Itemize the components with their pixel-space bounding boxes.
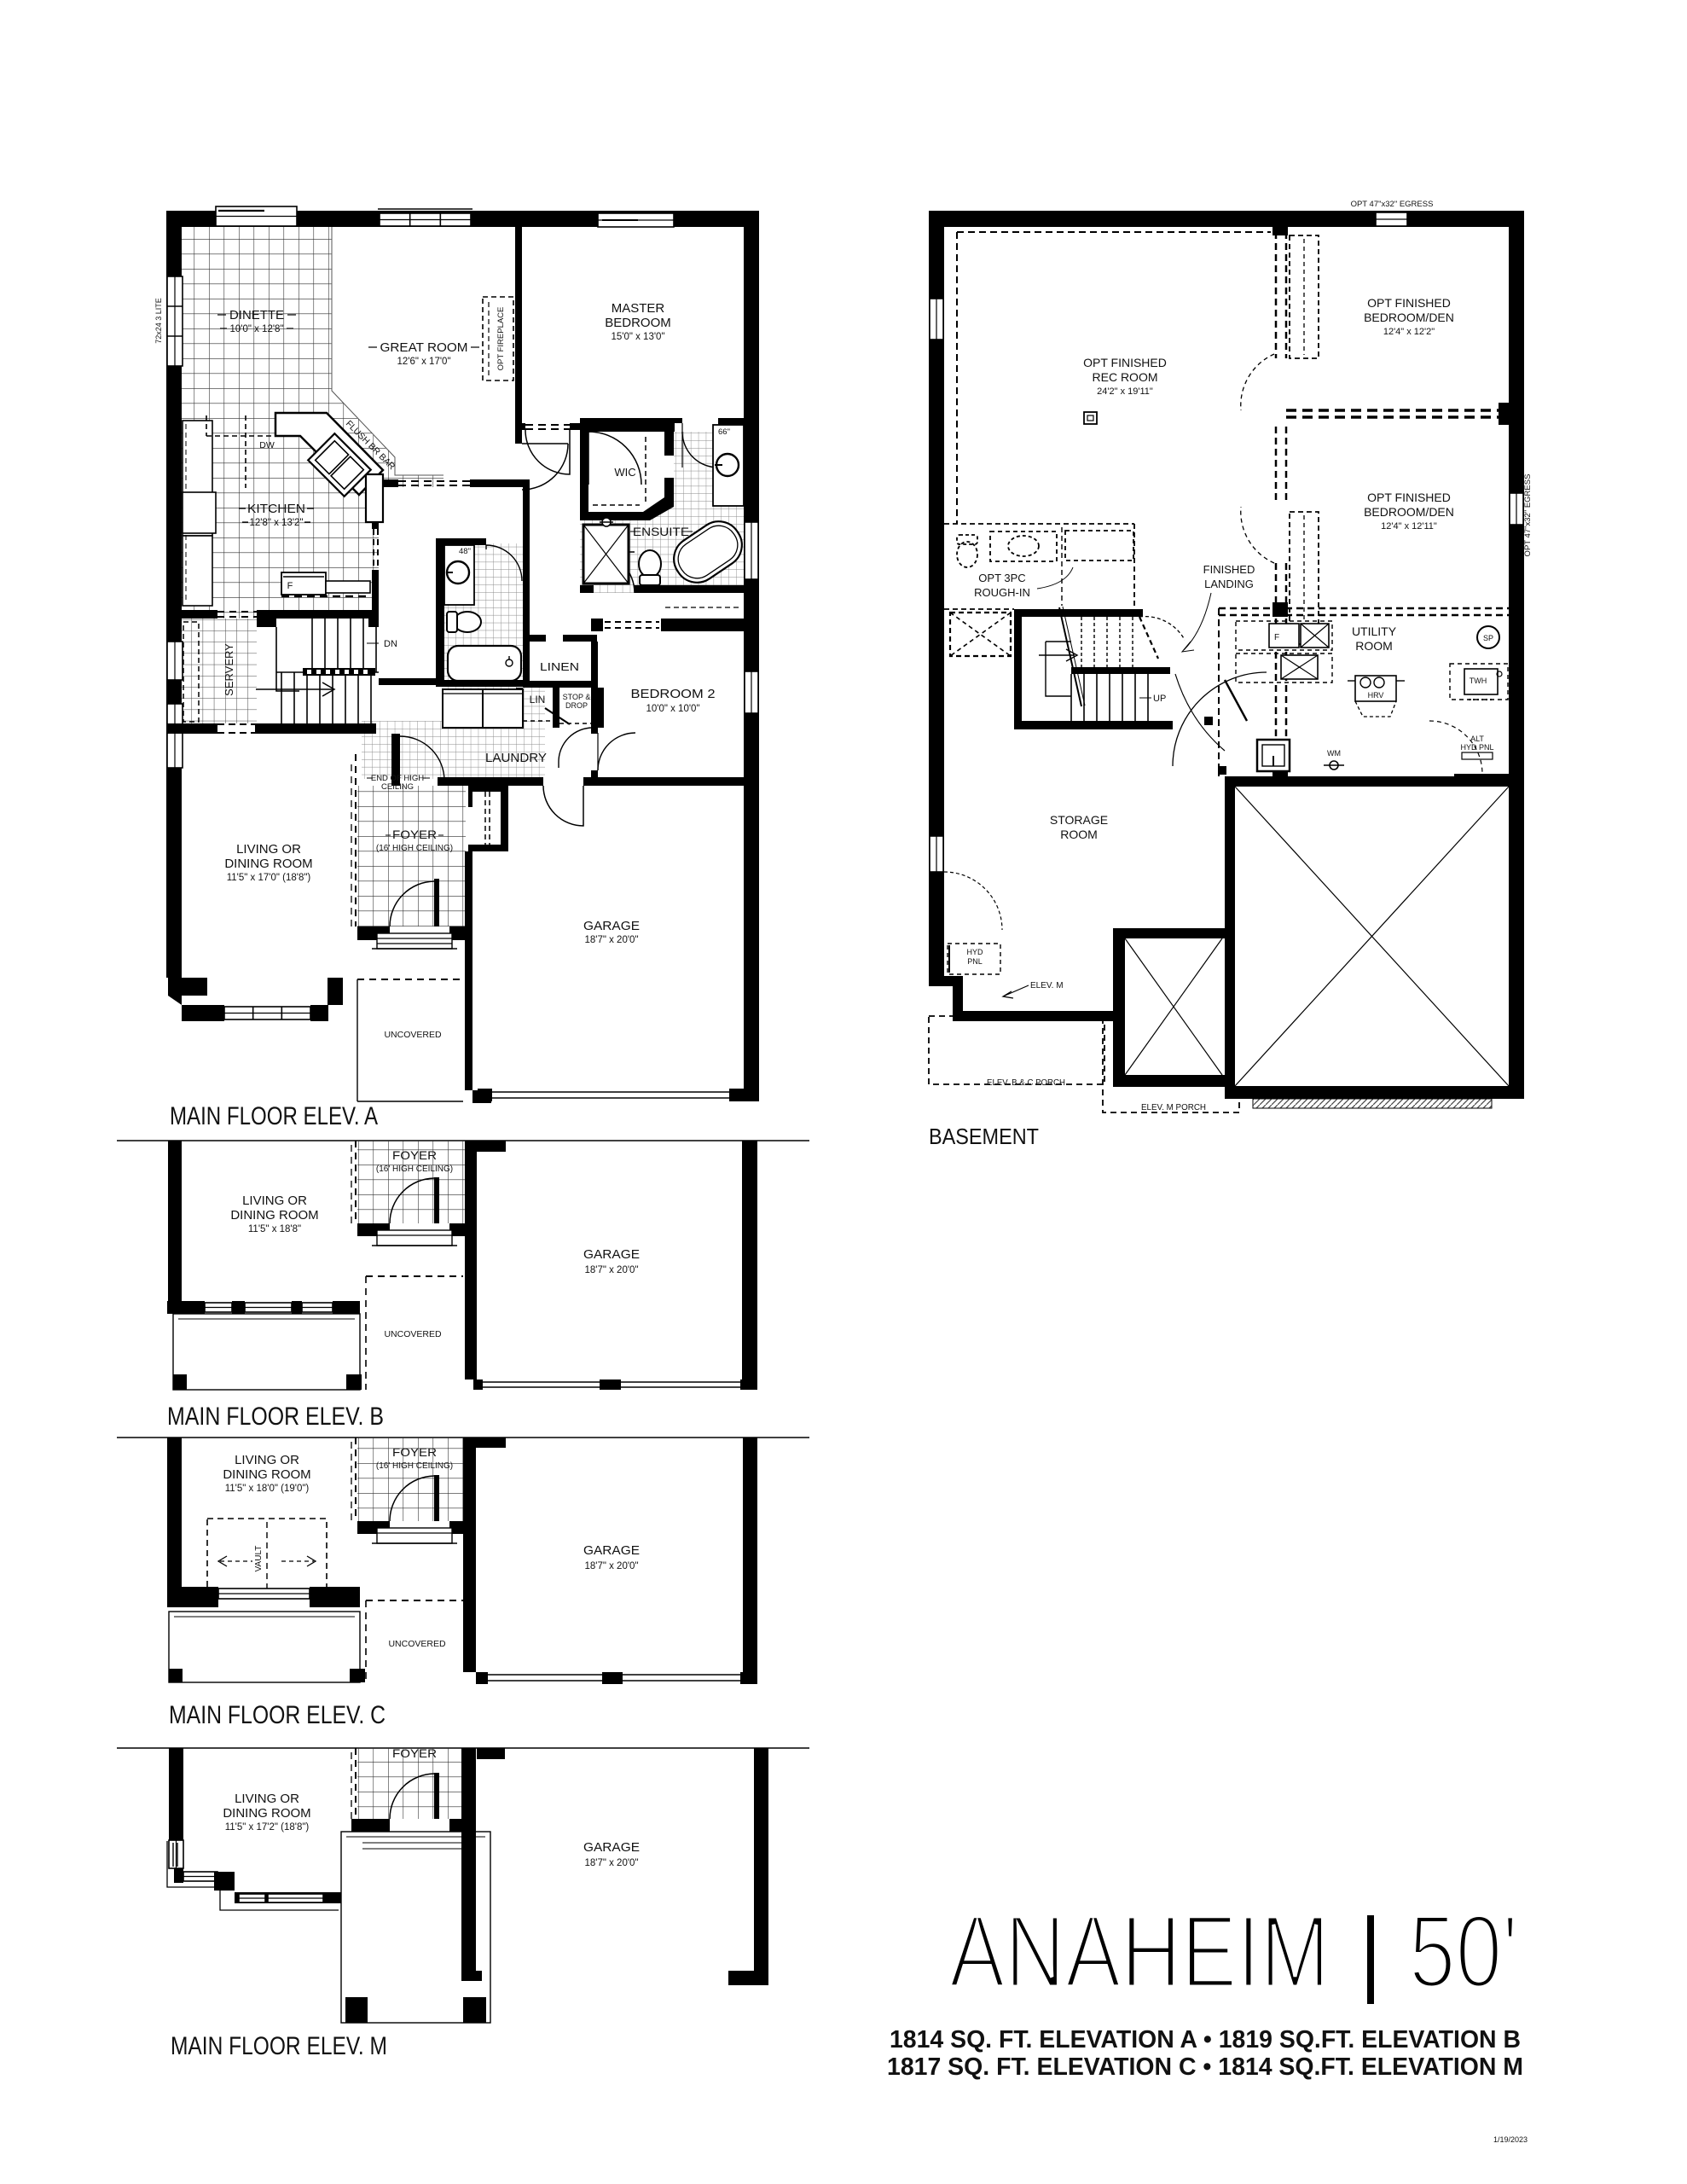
svg-text:GARAGE: GARAGE <box>583 1840 640 1855</box>
svg-text:11'5" x 17'2" (18'8"): 11'5" x 17'2" (18'8") <box>225 1822 310 1833</box>
svg-text:MAIN FLOOR ELEV. A: MAIN FLOOR ELEV. A <box>170 1102 378 1130</box>
svg-text:LIN: LIN <box>530 694 546 706</box>
svg-text:11'5" x 18'0" (19'0"): 11'5" x 18'0" (19'0") <box>225 1484 310 1494</box>
svg-text:KITCHEN: KITCHEN <box>247 502 305 516</box>
svg-text:1/19/2023: 1/19/2023 <box>1493 2135 1528 2144</box>
svg-text:GARAGE: GARAGE <box>583 919 640 933</box>
svg-text:12'6" x 17'0": 12'6" x 17'0" <box>397 357 450 367</box>
svg-text:UNCOVERED: UNCOVERED <box>384 1329 442 1339</box>
svg-text:(16' HIGH CEILING): (16' HIGH CEILING) <box>376 844 453 853</box>
svg-text:72x24 3 LITE: 72x24 3 LITE <box>154 298 163 344</box>
svg-text:OPT 3PC: OPT 3PC <box>978 572 1025 584</box>
svg-text:LIVING OR: LIVING OR <box>242 1194 307 1208</box>
svg-text:VAULT: VAULT <box>254 1546 264 1572</box>
svg-text:50': 50' <box>1409 1893 1518 2009</box>
svg-text:OPT FINISHED: OPT FINISHED <box>1367 296 1451 310</box>
svg-text:PNL: PNL <box>967 957 983 966</box>
svg-text:LAUNDRY: LAUNDRY <box>485 752 547 765</box>
svg-text:FOYER: FOYER <box>392 1746 437 1760</box>
svg-text:LINEN: LINEN <box>540 660 579 673</box>
svg-text:18'7" x 20'0": 18'7" x 20'0" <box>584 1561 638 1571</box>
svg-text:(16' HIGH CEILING): (16' HIGH CEILING) <box>376 1461 453 1471</box>
svg-text:66": 66" <box>718 427 730 437</box>
svg-text:11'5" x 17'0" (18'8"): 11'5" x 17'0" (18'8") <box>227 873 311 883</box>
svg-text:LIVING OR: LIVING OR <box>235 1792 299 1806</box>
svg-text:UP: UP <box>1153 694 1166 704</box>
svg-text:OPT 47"x32" EGRESS: OPT 47"x32" EGRESS <box>1351 200 1434 209</box>
svg-text:48": 48" <box>459 547 471 556</box>
svg-text:DINING ROOM: DINING ROOM <box>224 857 312 871</box>
svg-text:SP: SP <box>1483 634 1493 642</box>
svg-text:(16' HIGH CEILING): (16' HIGH CEILING) <box>376 1165 453 1174</box>
svg-text:FINISHED: FINISHED <box>1203 563 1255 576</box>
svg-text:1817 SQ. FT. ELEVATION C • 181: 1817 SQ. FT. ELEVATION C • 1814 SQ.FT. E… <box>887 2053 1523 2081</box>
svg-text:UTILITY: UTILITY <box>1352 624 1397 638</box>
svg-text:12'8" x 13'2": 12'8" x 13'2" <box>249 518 303 528</box>
svg-text:ELEV. M PORCH: ELEV. M PORCH <box>1141 1103 1206 1112</box>
svg-text:OPT FINISHED: OPT FINISHED <box>1083 356 1167 369</box>
svg-text:MAIN FLOOR ELEV. C: MAIN FLOOR ELEV. C <box>169 1701 386 1729</box>
svg-text:DINING ROOM: DINING ROOM <box>223 1467 310 1482</box>
svg-text:BEDROOM 2: BEDROOM 2 <box>631 687 716 701</box>
svg-text:FOYER: FOYER <box>392 1445 437 1459</box>
svg-text:12'4" x 12'11": 12'4" x 12'11" <box>1381 521 1437 531</box>
svg-text:11'5" x 18'8": 11'5" x 18'8" <box>248 1224 301 1234</box>
svg-text:10'0" x 12'8": 10'0" x 12'8" <box>229 324 283 334</box>
svg-text:HRV: HRV <box>1368 691 1384 700</box>
svg-text:10'0" x 10'0": 10'0" x 10'0" <box>646 704 699 714</box>
svg-text:BASEMENT: BASEMENT <box>929 1124 1039 1149</box>
svg-text:LANDING: LANDING <box>1204 578 1254 590</box>
svg-text:OPT FINISHED: OPT FINISHED <box>1367 491 1451 504</box>
svg-text:STOP &: STOP & <box>563 693 591 701</box>
svg-text:ROOM: ROOM <box>1060 828 1098 841</box>
svg-text:DW: DW <box>259 440 275 450</box>
svg-text:18'7" x 20'0": 18'7" x 20'0" <box>584 935 638 945</box>
svg-text:GARAGE: GARAGE <box>583 1247 640 1262</box>
svg-text:REC ROOM: REC ROOM <box>1093 370 1158 384</box>
svg-text:ANAHEIM: ANAHEIM <box>949 1893 1330 2009</box>
svg-text:OPT FIREPLACE: OPT FIREPLACE <box>496 307 506 371</box>
svg-text:BEDROOM/DEN: BEDROOM/DEN <box>1364 311 1454 324</box>
svg-text:FOYER: FOYER <box>392 1148 437 1162</box>
svg-text:BEDROOM/DEN: BEDROOM/DEN <box>1364 505 1454 519</box>
svg-text:WM: WM <box>1327 749 1341 758</box>
svg-text:ALT: ALT <box>1470 735 1484 743</box>
svg-text:LIVING OR: LIVING OR <box>235 1453 299 1467</box>
svg-text:15'0" x 13'0": 15'0" x 13'0" <box>611 332 664 342</box>
svg-text:1814 SQ. FT. ELEVATION A • 181: 1814 SQ. FT. ELEVATION A • 1819 SQ.FT. E… <box>890 2026 1521 2053</box>
svg-text:ELEV. M: ELEV. M <box>1030 981 1064 990</box>
svg-text:18'7" x 20'0": 18'7" x 20'0" <box>584 1858 638 1868</box>
svg-text:UNCOVERED: UNCOVERED <box>384 1030 442 1040</box>
svg-text:OPT 47"x32" EGRESS: OPT 47"x32" EGRESS <box>1523 474 1533 557</box>
svg-text:DINING ROOM: DINING ROOM <box>230 1208 318 1223</box>
svg-text:F: F <box>287 581 293 591</box>
svg-text:MAIN FLOOR ELEV. B: MAIN FLOOR ELEV. B <box>167 1403 384 1431</box>
svg-text:DROP: DROP <box>565 701 588 710</box>
svg-text:MAIN FLOOR ELEV. M: MAIN FLOOR ELEV. M <box>171 2032 387 2060</box>
svg-text:BEDROOM: BEDROOM <box>605 316 671 330</box>
svg-text:WIC: WIC <box>614 466 635 479</box>
svg-text:TWH: TWH <box>1470 677 1487 685</box>
svg-text:UNCOVERED: UNCOVERED <box>388 1639 446 1649</box>
svg-text:GARAGE: GARAGE <box>583 1543 640 1558</box>
svg-text:DINING ROOM: DINING ROOM <box>223 1806 310 1821</box>
svg-text:ELEV. B & C PORCH: ELEV. B & C PORCH <box>987 1078 1065 1088</box>
svg-text:HYD: HYD <box>966 948 983 956</box>
svg-text:ROUGH-IN: ROUGH-IN <box>974 586 1030 599</box>
svg-text:18'7" x 20'0": 18'7" x 20'0" <box>584 1265 638 1275</box>
svg-text:ENSUITE: ENSUITE <box>633 525 689 538</box>
svg-text:GREAT ROOM: GREAT ROOM <box>380 340 468 355</box>
svg-text:12'4" x 12'2": 12'4" x 12'2" <box>1383 327 1435 337</box>
svg-text:DN: DN <box>384 639 397 649</box>
svg-text:LIVING OR: LIVING OR <box>236 842 301 857</box>
svg-text:STORAGE: STORAGE <box>1050 813 1108 827</box>
svg-text:HYD PNL: HYD PNL <box>1460 743 1493 752</box>
svg-text:24'2" x 19'11": 24'2" x 19'11" <box>1097 386 1153 397</box>
svg-text:MASTER: MASTER <box>612 301 665 316</box>
svg-text:CEILING: CEILING <box>381 782 414 792</box>
svg-text:ROOM: ROOM <box>1355 639 1393 653</box>
svg-text:DINETTE: DINETTE <box>229 308 284 322</box>
svg-text:F: F <box>1274 633 1279 642</box>
svg-text:FOYER: FOYER <box>392 828 437 841</box>
svg-text:SERVERY: SERVERY <box>223 643 235 696</box>
